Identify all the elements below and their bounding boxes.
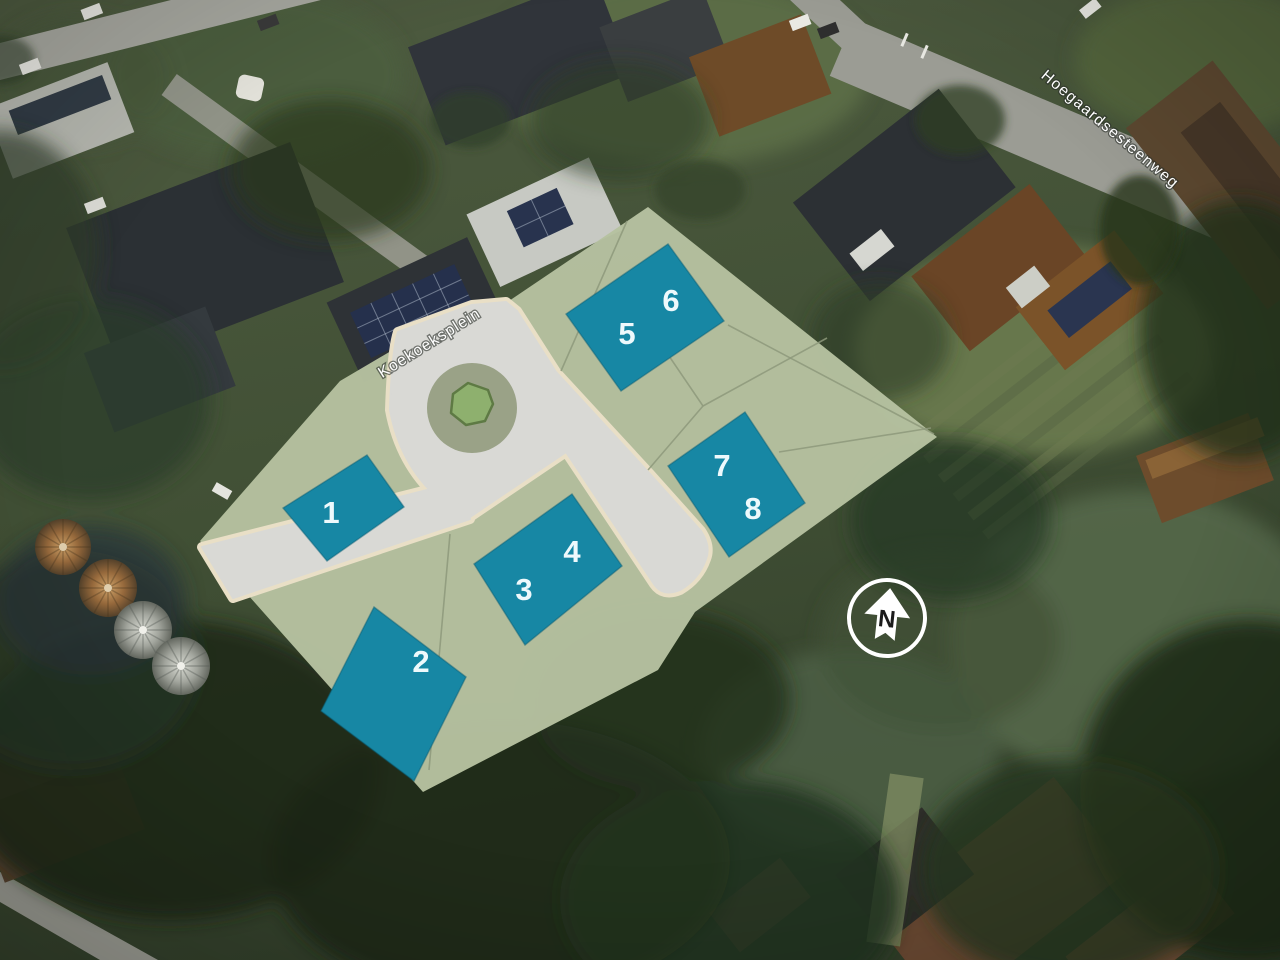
lot-number-3[interactable]: 3 bbox=[515, 572, 532, 607]
lot-number-5[interactable]: 5 bbox=[618, 316, 635, 351]
north-letter: N bbox=[877, 605, 897, 634]
lot-number-7[interactable]: 7 bbox=[713, 448, 730, 483]
site-plan-map: 1 2 3 4 5 6 7 8 Koekoeksplein Hoegaardse… bbox=[0, 0, 1280, 960]
lot-number-8[interactable]: 8 bbox=[744, 491, 761, 526]
lot-number-4[interactable]: 4 bbox=[563, 534, 581, 569]
lot-number-1[interactable]: 1 bbox=[322, 495, 339, 530]
lot-number-2[interactable]: 2 bbox=[412, 644, 429, 679]
central-square-tree-island bbox=[427, 363, 517, 453]
lot-number-6[interactable]: 6 bbox=[662, 283, 679, 318]
tree-icon bbox=[451, 383, 493, 425]
